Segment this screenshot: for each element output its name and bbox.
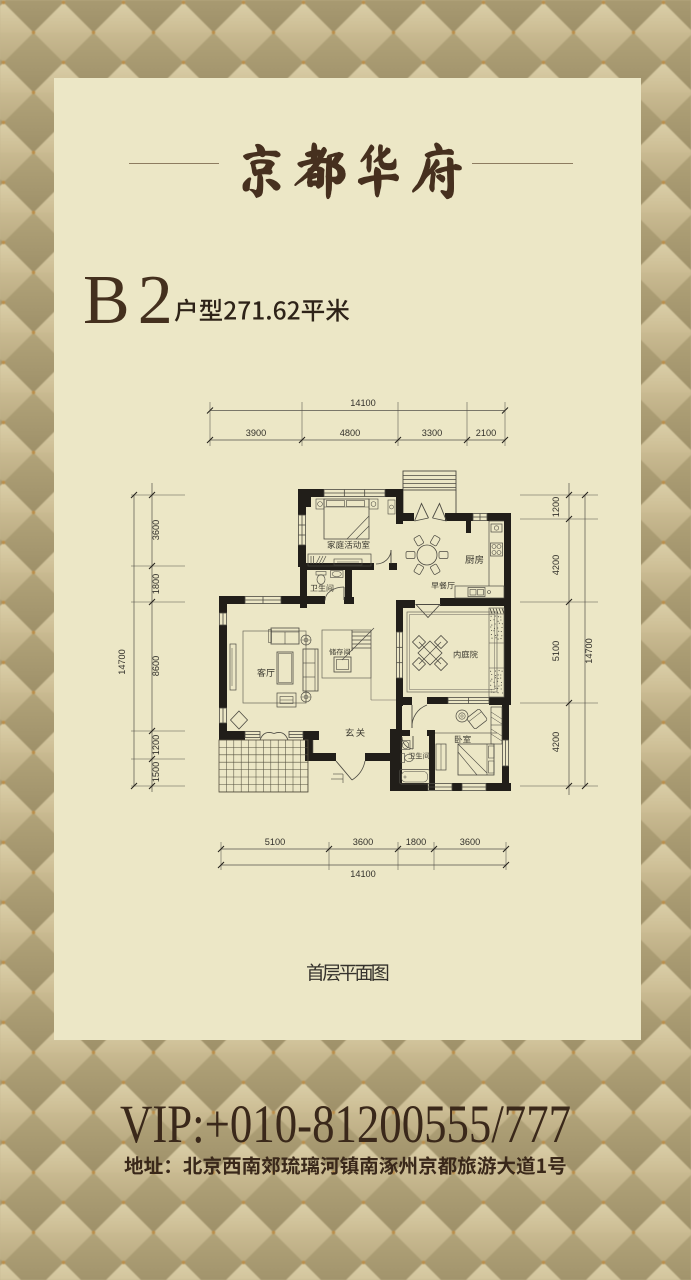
svg-text:1200: 1200 xyxy=(551,497,561,517)
svg-text:4200: 4200 xyxy=(551,732,561,752)
svg-text:1800: 1800 xyxy=(406,837,426,847)
svg-text:3600: 3600 xyxy=(151,520,161,540)
svg-text:8600: 8600 xyxy=(151,656,161,676)
svg-text:3600: 3600 xyxy=(460,837,480,847)
svg-text:1800: 1800 xyxy=(151,574,161,594)
svg-text:2100: 2100 xyxy=(476,428,496,438)
svg-text:4800: 4800 xyxy=(340,428,360,438)
svg-text:1200: 1200 xyxy=(151,735,161,755)
svg-text:14100: 14100 xyxy=(350,869,376,879)
svg-text:5100: 5100 xyxy=(551,641,561,661)
svg-text:14700: 14700 xyxy=(118,649,127,675)
svg-text:3300: 3300 xyxy=(422,428,442,438)
svg-text:5100: 5100 xyxy=(265,837,285,847)
svg-text:3900: 3900 xyxy=(246,428,266,438)
svg-text:14100: 14100 xyxy=(350,398,376,408)
svg-text:1500: 1500 xyxy=(151,762,161,782)
svg-text:14700: 14700 xyxy=(584,638,594,664)
svg-text:3600: 3600 xyxy=(353,837,373,847)
svg-text:4200: 4200 xyxy=(551,555,561,575)
